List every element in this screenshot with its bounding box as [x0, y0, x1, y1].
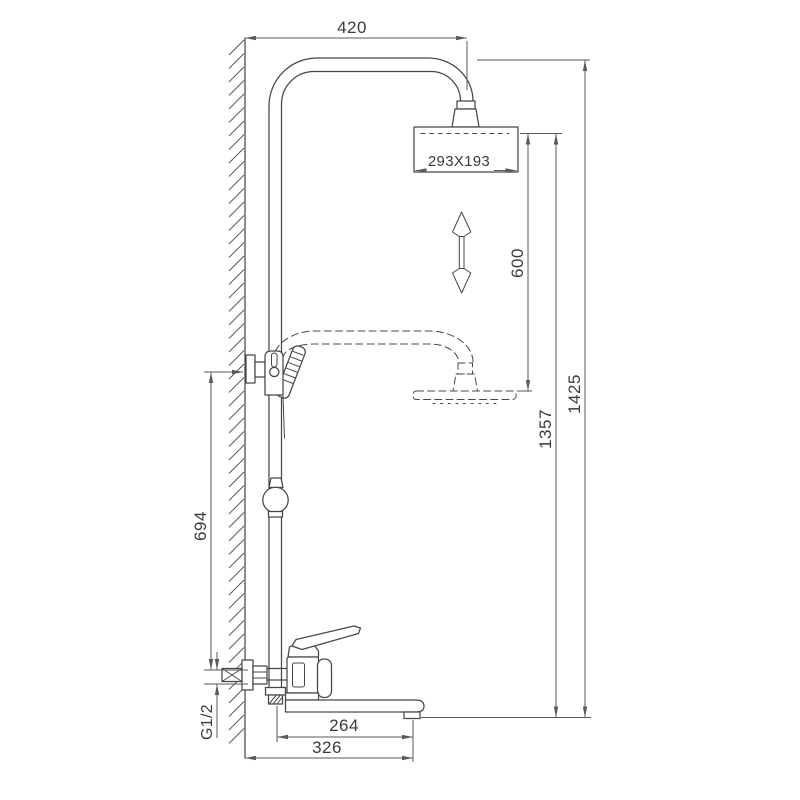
bath-spout: [286, 700, 425, 712]
dimensions: [204, 38, 591, 762]
lowered-head-dashed: [413, 391, 516, 400]
faucet-body: [287, 657, 319, 693]
holder-knob: [270, 367, 279, 376]
height-adjust-arrow: [453, 212, 471, 293]
dim-label-420: 420: [337, 18, 367, 37]
dim-label-600: 600: [508, 248, 527, 278]
dim-420: [245, 38, 467, 90]
hose-outlet-nut: [266, 688, 286, 696]
faucet-lever: [292, 626, 361, 650]
dim-label-694: 694: [191, 511, 210, 541]
diverter-lobe: [318, 659, 332, 698]
wall-bracket: [246, 355, 255, 383]
wall-hatching: [229, 40, 244, 744]
spout-aerator: [404, 712, 420, 719]
hand-shower: [246, 344, 307, 517]
dim-label-264: 264: [329, 716, 359, 735]
dimension-labels: 420 293X193 600 1425 1357 694 G1/2 264 3…: [191, 18, 584, 757]
head-connector: [452, 109, 479, 127]
dim-label-head-size: 293X193: [428, 153, 490, 170]
dim-label-326: 326: [312, 738, 342, 757]
supply-flange: [242, 660, 253, 690]
lowered-position-dashed: [273, 331, 516, 404]
mixer-faucet: [222, 626, 424, 719]
dim-label-g12: G1/2: [199, 704, 216, 740]
head-collar: [457, 101, 475, 109]
dim-label-1357: 1357: [536, 409, 555, 449]
drawing-canvas: 420 293X193 600 1425 1357 694 G1/2 264 3…: [0, 0, 800, 800]
dim-label-1425: 1425: [565, 374, 584, 414]
dim-694: [204, 372, 248, 670]
slider-ball: [263, 487, 288, 512]
wall: [229, 38, 245, 758]
shower-system-technical-drawing: 420 293X193 600 1425 1357 694 G1/2 264 3…: [0, 0, 800, 800]
supply-hex-nut: [253, 666, 267, 684]
